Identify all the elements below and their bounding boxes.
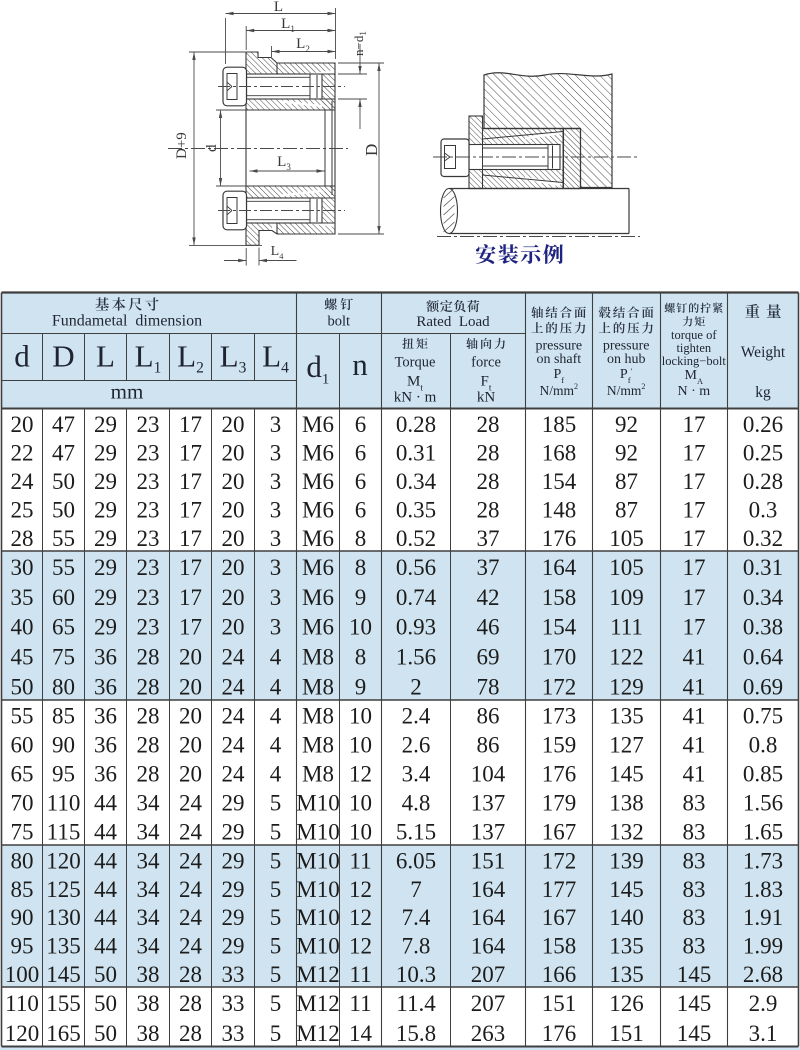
- svg-text:24: 24: [179, 877, 203, 902]
- svg-text:5: 5: [270, 791, 282, 816]
- svg-text:1.56: 1.56: [743, 791, 783, 816]
- svg-text:10: 10: [349, 733, 372, 758]
- svg-text:12: 12: [349, 762, 372, 787]
- svg-text:5: 5: [270, 905, 282, 930]
- svg-text:M8: M8: [302, 762, 334, 787]
- svg-text:80: 80: [11, 848, 34, 873]
- svg-text:41: 41: [683, 704, 706, 729]
- svg-text:M12: M12: [296, 1021, 339, 1046]
- svg-text:1.83: 1.83: [743, 877, 783, 902]
- svg-text:0.85: 0.85: [743, 762, 783, 787]
- svg-text:M10: M10: [296, 848, 339, 873]
- svg-text:28: 28: [137, 645, 160, 670]
- svg-text:29: 29: [94, 615, 117, 640]
- svg-text:166: 166: [542, 962, 577, 987]
- svg-text:0.3: 0.3: [749, 498, 778, 523]
- svg-text:17: 17: [179, 412, 202, 437]
- svg-text:17: 17: [179, 440, 202, 465]
- svg-text:10.3: 10.3: [396, 962, 436, 987]
- svg-text:4: 4: [270, 733, 282, 758]
- svg-text:24: 24: [179, 934, 203, 959]
- svg-text:17: 17: [179, 585, 202, 610]
- svg-text:D+9: D+9: [174, 132, 190, 159]
- svg-text:50: 50: [94, 1021, 117, 1046]
- svg-text:29: 29: [222, 791, 245, 816]
- svg-text:37: 37: [477, 526, 500, 551]
- svg-text:M6: M6: [302, 412, 334, 437]
- svg-text:87: 87: [615, 498, 638, 523]
- svg-text:83: 83: [683, 791, 706, 816]
- svg-text:0.32: 0.32: [743, 526, 783, 551]
- svg-text:46: 46: [477, 615, 500, 640]
- svg-text:137: 137: [471, 791, 506, 816]
- svg-text:41: 41: [683, 733, 706, 758]
- svg-text:151: 151: [609, 1021, 644, 1046]
- svg-text:15.8: 15.8: [396, 1021, 436, 1046]
- svg-text:28: 28: [477, 412, 500, 437]
- svg-text:185: 185: [542, 412, 577, 437]
- svg-text:17: 17: [683, 555, 706, 580]
- svg-text:4: 4: [270, 645, 282, 670]
- svg-text:44: 44: [94, 791, 118, 816]
- svg-text:83: 83: [683, 934, 706, 959]
- svg-text:50: 50: [52, 498, 75, 523]
- svg-text:1.91: 1.91: [743, 905, 783, 930]
- svg-text:70: 70: [11, 791, 34, 816]
- svg-text:28: 28: [11, 526, 34, 551]
- svg-text:17: 17: [683, 498, 706, 523]
- svg-text:on hub: on hub: [607, 352, 646, 367]
- svg-text:M8: M8: [302, 704, 334, 729]
- svg-text:3: 3: [270, 555, 282, 580]
- svg-text:locking−bolt: locking−bolt: [662, 354, 727, 368]
- svg-text:3: 3: [270, 440, 282, 465]
- svg-text:145: 145: [46, 962, 81, 987]
- svg-text:23: 23: [137, 440, 160, 465]
- svg-text:33: 33: [222, 1021, 245, 1046]
- svg-text:110: 110: [5, 991, 39, 1016]
- svg-text:135: 135: [609, 962, 644, 987]
- svg-text:127: 127: [609, 733, 644, 758]
- svg-text:3: 3: [270, 469, 282, 494]
- svg-text:17: 17: [683, 469, 706, 494]
- svg-text:0.8: 0.8: [749, 733, 778, 758]
- svg-text:138: 138: [609, 791, 644, 816]
- svg-text:4.8: 4.8: [402, 791, 431, 816]
- svg-text:164: 164: [542, 555, 577, 580]
- svg-text:20: 20: [222, 615, 245, 640]
- svg-text:140: 140: [609, 905, 644, 930]
- svg-text:120: 120: [46, 848, 81, 873]
- svg-text:0.28: 0.28: [396, 412, 436, 437]
- svg-text:5: 5: [270, 934, 282, 959]
- svg-text:N/mm2: N/mm2: [607, 382, 646, 398]
- svg-text:44: 44: [94, 934, 118, 959]
- svg-text:23: 23: [137, 498, 160, 523]
- svg-text:65: 65: [52, 615, 75, 640]
- svg-text:M10: M10: [296, 820, 339, 845]
- svg-text:129: 129: [609, 674, 644, 699]
- svg-text:17: 17: [683, 440, 706, 465]
- svg-text:40: 40: [11, 615, 34, 640]
- svg-text:12: 12: [349, 877, 372, 902]
- svg-text:132: 132: [609, 820, 644, 845]
- svg-text:36: 36: [94, 733, 117, 758]
- svg-text:4: 4: [270, 762, 282, 787]
- svg-text:3.4: 3.4: [402, 762, 431, 787]
- svg-text:8: 8: [355, 555, 367, 580]
- svg-text:3: 3: [270, 585, 282, 610]
- svg-text:135: 135: [609, 704, 644, 729]
- svg-text:34: 34: [137, 820, 161, 845]
- svg-text:29: 29: [94, 469, 117, 494]
- svg-text:0.34: 0.34: [743, 585, 784, 610]
- svg-text:5: 5: [270, 1021, 282, 1046]
- svg-text:34: 34: [137, 848, 161, 873]
- svg-text:0.93: 0.93: [396, 615, 436, 640]
- svg-text:86: 86: [477, 704, 500, 729]
- svg-text:38: 38: [137, 1021, 160, 1046]
- svg-text:9: 9: [355, 585, 367, 610]
- svg-text:55: 55: [11, 704, 34, 729]
- svg-text:7.8: 7.8: [402, 934, 431, 959]
- svg-text:0.52: 0.52: [396, 526, 436, 551]
- svg-text:41: 41: [683, 645, 706, 670]
- svg-text:0.25: 0.25: [743, 440, 783, 465]
- svg-text:177: 177: [542, 877, 577, 902]
- svg-text:148: 148: [542, 498, 577, 523]
- svg-text:139: 139: [609, 848, 644, 873]
- svg-text:104: 104: [471, 762, 506, 787]
- svg-text:d: d: [14, 339, 30, 374]
- svg-text:12: 12: [349, 934, 372, 959]
- svg-text:10: 10: [349, 704, 372, 729]
- svg-text:95: 95: [52, 762, 75, 787]
- svg-text:5: 5: [270, 962, 282, 987]
- svg-text:1.56: 1.56: [396, 645, 436, 670]
- svg-text:Torque: Torque: [395, 355, 436, 371]
- svg-text:11: 11: [349, 962, 371, 987]
- svg-text:28: 28: [137, 733, 160, 758]
- svg-text:24: 24: [179, 848, 203, 873]
- svg-text:69: 69: [477, 645, 500, 670]
- svg-text:105: 105: [609, 555, 644, 580]
- svg-text:20: 20: [179, 645, 202, 670]
- svg-text:2.68: 2.68: [743, 962, 783, 987]
- svg-text:78: 78: [477, 674, 500, 699]
- svg-text:24: 24: [179, 905, 203, 930]
- svg-text:n: n: [352, 347, 368, 382]
- svg-text:83: 83: [683, 905, 706, 930]
- svg-text:42: 42: [477, 585, 500, 610]
- svg-text:8: 8: [355, 645, 367, 670]
- svg-text:0.31: 0.31: [743, 555, 783, 580]
- svg-text:145: 145: [677, 962, 712, 987]
- svg-text:165: 165: [46, 1021, 81, 1046]
- svg-text:135: 135: [46, 934, 81, 959]
- svg-text:24: 24: [222, 762, 246, 787]
- svg-text:M6: M6: [302, 469, 334, 494]
- svg-text:0.64: 0.64: [743, 645, 784, 670]
- svg-text:90: 90: [11, 905, 34, 930]
- svg-text:34: 34: [137, 934, 161, 959]
- svg-text:154: 154: [542, 469, 577, 494]
- svg-text:83: 83: [683, 877, 706, 902]
- svg-text:25: 25: [11, 498, 34, 523]
- svg-text:176: 176: [542, 762, 577, 787]
- svg-text:167: 167: [542, 905, 577, 930]
- svg-text:L: L: [96, 339, 115, 374]
- svg-text:1.99: 1.99: [743, 934, 783, 959]
- svg-text:0.28: 0.28: [743, 469, 783, 494]
- svg-text:207: 207: [471, 991, 506, 1016]
- svg-text:D: D: [362, 144, 381, 156]
- svg-text:111: 111: [610, 615, 643, 640]
- svg-text:34: 34: [137, 791, 161, 816]
- svg-text:5: 5: [270, 877, 282, 902]
- svg-text:20: 20: [222, 498, 245, 523]
- svg-text:176: 176: [542, 526, 577, 551]
- svg-text:28: 28: [477, 469, 500, 494]
- svg-text:164: 164: [471, 877, 506, 902]
- svg-text:kg: kg: [755, 384, 771, 401]
- svg-text:0.31: 0.31: [396, 440, 436, 465]
- svg-text:110: 110: [47, 791, 81, 816]
- svg-text:20: 20: [179, 704, 202, 729]
- svg-text:28: 28: [179, 991, 202, 1016]
- svg-text:tighten: tighten: [676, 341, 711, 355]
- svg-text:M12: M12: [296, 991, 339, 1016]
- svg-text:28: 28: [477, 498, 500, 523]
- svg-text:83: 83: [683, 848, 706, 873]
- svg-text:207: 207: [471, 962, 506, 987]
- svg-text:36: 36: [94, 674, 117, 699]
- svg-text:24: 24: [222, 674, 246, 699]
- svg-text:2.9: 2.9: [749, 991, 778, 1016]
- svg-text:24: 24: [222, 645, 246, 670]
- svg-text:M6: M6: [302, 585, 334, 610]
- svg-text:M6: M6: [302, 498, 334, 523]
- svg-text:14: 14: [349, 1021, 373, 1046]
- svg-text:34: 34: [137, 905, 161, 930]
- svg-text:7.4: 7.4: [402, 905, 431, 930]
- svg-text:24: 24: [179, 791, 203, 816]
- svg-text:10: 10: [349, 791, 372, 816]
- svg-text:M8: M8: [302, 674, 334, 699]
- svg-text:5.15: 5.15: [396, 820, 436, 845]
- svg-text:29: 29: [222, 820, 245, 845]
- svg-text:167: 167: [542, 820, 577, 845]
- svg-text:11: 11: [349, 991, 371, 1016]
- svg-text:44: 44: [94, 905, 118, 930]
- svg-text:36: 36: [94, 704, 117, 729]
- svg-text:17: 17: [179, 526, 202, 551]
- svg-text:158: 158: [542, 585, 577, 610]
- svg-text:29: 29: [222, 905, 245, 930]
- svg-text:125: 125: [46, 877, 81, 902]
- svg-text:20: 20: [11, 412, 34, 437]
- svg-text:164: 164: [471, 905, 506, 930]
- svg-text:44: 44: [94, 877, 118, 902]
- svg-text:92: 92: [615, 412, 638, 437]
- svg-text:55: 55: [52, 526, 75, 551]
- svg-text:33: 33: [222, 962, 245, 987]
- svg-text:92: 92: [615, 440, 638, 465]
- svg-text:173: 173: [542, 704, 577, 729]
- svg-text:24: 24: [222, 733, 246, 758]
- svg-text:20: 20: [179, 674, 202, 699]
- svg-text:47: 47: [52, 440, 75, 465]
- svg-text:23: 23: [137, 615, 160, 640]
- svg-text:38: 38: [137, 962, 160, 987]
- svg-text:47: 47: [52, 412, 75, 437]
- svg-text:50: 50: [52, 469, 75, 494]
- svg-text:3: 3: [270, 615, 282, 640]
- svg-text:145: 145: [677, 991, 712, 1016]
- svg-text:5: 5: [270, 848, 282, 873]
- svg-text:6.05: 6.05: [396, 848, 436, 873]
- svg-text:28: 28: [137, 762, 160, 787]
- svg-text:M8: M8: [302, 733, 334, 758]
- svg-text:80: 80: [52, 674, 75, 699]
- svg-text:M10: M10: [296, 791, 339, 816]
- svg-text:M6: M6: [302, 440, 334, 465]
- svg-text:35: 35: [11, 585, 34, 610]
- svg-text:24: 24: [11, 469, 35, 494]
- svg-text:145: 145: [609, 762, 644, 787]
- svg-text:N/mm2: N/mm2: [540, 382, 579, 398]
- svg-text:6: 6: [355, 498, 367, 523]
- svg-text:29: 29: [94, 412, 117, 437]
- svg-text:85: 85: [11, 877, 34, 902]
- svg-text:M10: M10: [296, 905, 339, 930]
- svg-text:torque of: torque of: [671, 328, 717, 342]
- svg-text:135: 135: [609, 934, 644, 959]
- svg-text:263: 263: [471, 1021, 506, 1046]
- svg-text:M6: M6: [302, 555, 334, 580]
- svg-text:172: 172: [542, 674, 577, 699]
- svg-text:17: 17: [179, 555, 202, 580]
- svg-text:2.4: 2.4: [402, 704, 431, 729]
- svg-text:D: D: [52, 339, 74, 374]
- svg-text:M6: M6: [302, 615, 334, 640]
- svg-text:50: 50: [94, 962, 117, 987]
- svg-text:159: 159: [542, 733, 577, 758]
- svg-text:168: 168: [542, 440, 577, 465]
- svg-text:0.75: 0.75: [743, 704, 783, 729]
- svg-text:38: 38: [137, 991, 160, 1016]
- svg-text:2: 2: [410, 674, 422, 699]
- svg-text:20: 20: [179, 762, 202, 787]
- svg-text:17: 17: [683, 526, 706, 551]
- svg-text:29: 29: [222, 934, 245, 959]
- svg-text:23: 23: [137, 469, 160, 494]
- svg-text:0.74: 0.74: [396, 585, 437, 610]
- svg-text:1.73: 1.73: [743, 848, 783, 873]
- svg-text:6: 6: [355, 440, 367, 465]
- svg-text:0.35: 0.35: [396, 498, 436, 523]
- svg-text:kN: kN: [477, 390, 496, 406]
- svg-text:60: 60: [11, 733, 34, 758]
- svg-text:83: 83: [683, 820, 706, 845]
- svg-text:151: 151: [471, 848, 506, 873]
- svg-text:28: 28: [137, 704, 160, 729]
- svg-text:2.6: 2.6: [402, 733, 431, 758]
- svg-text:151: 151: [542, 991, 577, 1016]
- svg-text:on shaft: on shaft: [536, 352, 581, 367]
- svg-text:7: 7: [410, 877, 422, 902]
- svg-text:0.26: 0.26: [743, 412, 783, 437]
- svg-text:20: 20: [179, 733, 202, 758]
- svg-text:33: 33: [222, 991, 245, 1016]
- svg-text:154: 154: [542, 615, 577, 640]
- svg-text:d: d: [204, 144, 220, 152]
- svg-text:4: 4: [270, 674, 282, 699]
- svg-text:145: 145: [609, 877, 644, 902]
- svg-text:bolt: bolt: [328, 314, 351, 330]
- svg-text:109: 109: [609, 585, 644, 610]
- svg-text:12: 12: [349, 905, 372, 930]
- svg-text:22: 22: [11, 440, 34, 465]
- svg-text:force: force: [471, 355, 501, 371]
- svg-text:17: 17: [179, 469, 202, 494]
- svg-text:1.65: 1.65: [743, 820, 783, 845]
- svg-text:kN · m: kN · m: [394, 390, 437, 406]
- svg-text:130: 130: [46, 905, 81, 930]
- svg-text:17: 17: [179, 615, 202, 640]
- svg-text:37: 37: [477, 555, 500, 580]
- svg-text:9: 9: [355, 674, 367, 699]
- svg-text:17: 17: [683, 585, 706, 610]
- svg-text:M10: M10: [296, 877, 339, 902]
- svg-text:90: 90: [52, 733, 75, 758]
- svg-text:3: 3: [270, 498, 282, 523]
- svg-text:75: 75: [11, 820, 34, 845]
- svg-text:Rated Load: Rated Load: [416, 314, 490, 330]
- svg-text:28: 28: [179, 962, 202, 987]
- svg-text:158: 158: [542, 934, 577, 959]
- svg-text:Weight: Weight: [741, 344, 786, 361]
- svg-text:17: 17: [683, 615, 706, 640]
- svg-text:105: 105: [609, 526, 644, 551]
- svg-text:126: 126: [609, 991, 644, 1016]
- svg-text:Fundametal dimension: Fundametal dimension: [52, 313, 202, 330]
- svg-text:45: 45: [11, 645, 34, 670]
- svg-text:29: 29: [94, 440, 117, 465]
- svg-text:36: 36: [94, 762, 117, 787]
- svg-text:60: 60: [52, 585, 75, 610]
- svg-text:23: 23: [137, 412, 160, 437]
- svg-text:N · m: N · m: [677, 384, 710, 399]
- svg-text:29: 29: [94, 498, 117, 523]
- svg-text:0.69: 0.69: [743, 674, 783, 699]
- svg-text:176: 176: [542, 1021, 577, 1046]
- svg-text:L: L: [274, 0, 283, 15]
- svg-text:28: 28: [137, 674, 160, 699]
- svg-text:36: 36: [94, 645, 117, 670]
- svg-text:20: 20: [222, 585, 245, 610]
- svg-text:65: 65: [11, 762, 34, 787]
- svg-text:0.38: 0.38: [743, 615, 783, 640]
- svg-text:137: 137: [471, 820, 506, 845]
- svg-text:86: 86: [477, 733, 500, 758]
- svg-text:23: 23: [137, 526, 160, 551]
- svg-text:30: 30: [11, 555, 34, 580]
- svg-text:29: 29: [94, 555, 117, 580]
- svg-text:44: 44: [94, 848, 118, 873]
- svg-text:28: 28: [179, 1021, 202, 1046]
- svg-text:122: 122: [609, 645, 644, 670]
